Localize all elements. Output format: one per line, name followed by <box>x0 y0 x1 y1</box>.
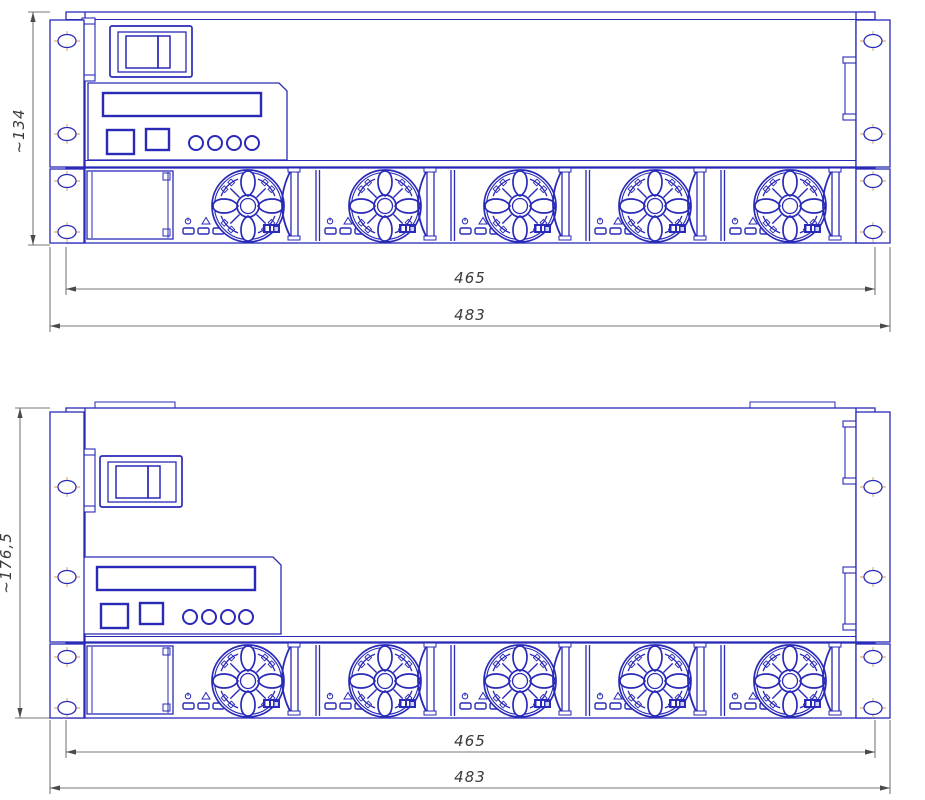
technical-drawing: ~134 465 483 <box>0 0 925 800</box>
latch-bracket <box>843 57 856 120</box>
rack-ear-left-lower <box>50 169 84 243</box>
rack-ear-left-upper <box>50 412 84 642</box>
rack-ear-left-upper <box>50 20 84 167</box>
rack-ear-left-lower <box>50 644 84 718</box>
rack-ear-right-upper <box>856 412 890 642</box>
dim-inner-width-2u: 465 <box>454 269 486 287</box>
latch-bracket <box>843 567 856 630</box>
controller-panel <box>82 557 281 634</box>
view-front-3u: ~176,5 465 483 <box>0 402 890 794</box>
latch-bracket <box>843 421 856 484</box>
rack-ear-right-lower <box>856 644 890 718</box>
fan-row <box>66 168 875 243</box>
fan-row <box>66 643 875 718</box>
dim-height-3u: ~176,5 <box>0 532 15 594</box>
dim-height-2u: ~134 <box>10 108 28 153</box>
dim-outer-width-2u: 483 <box>454 306 486 324</box>
controller-panel <box>88 83 287 160</box>
rack-ear-right-lower <box>856 169 890 243</box>
drawing-svg: ~134 465 483 <box>0 0 925 800</box>
circuit-breaker[interactable] <box>110 26 192 77</box>
circuit-breaker[interactable] <box>100 456 182 507</box>
dim-inner-width-3u: 465 <box>454 732 486 750</box>
view-front-2u: ~134 465 483 <box>10 12 890 332</box>
rack-ear-right-upper <box>856 20 890 167</box>
dim-outer-width-3u: 483 <box>454 768 486 786</box>
